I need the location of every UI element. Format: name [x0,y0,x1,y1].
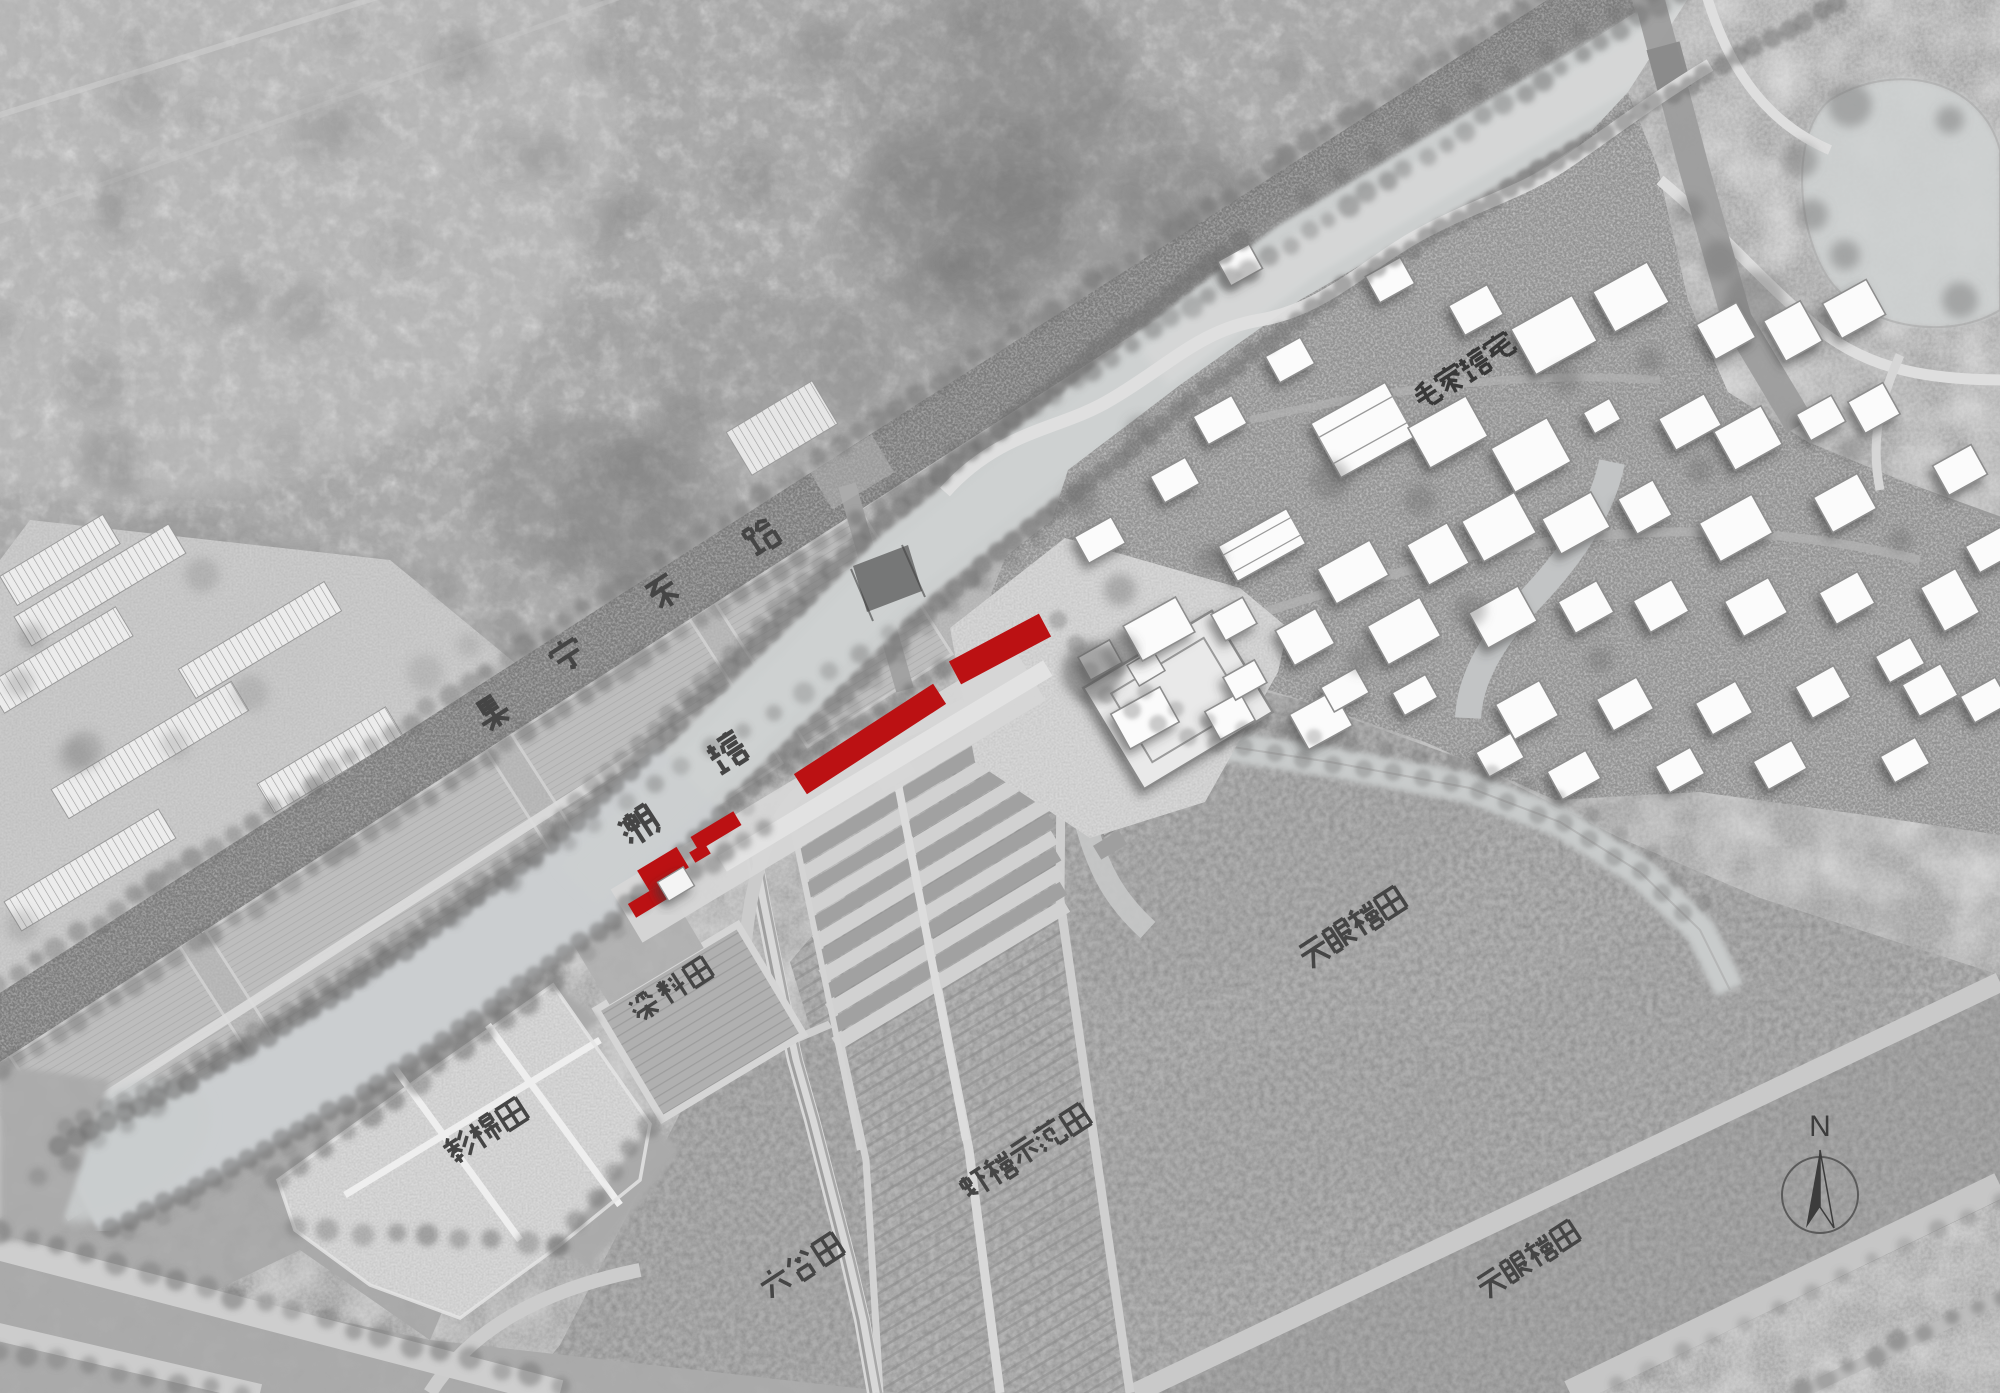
svg-text:N: N [1809,1110,1831,1143]
